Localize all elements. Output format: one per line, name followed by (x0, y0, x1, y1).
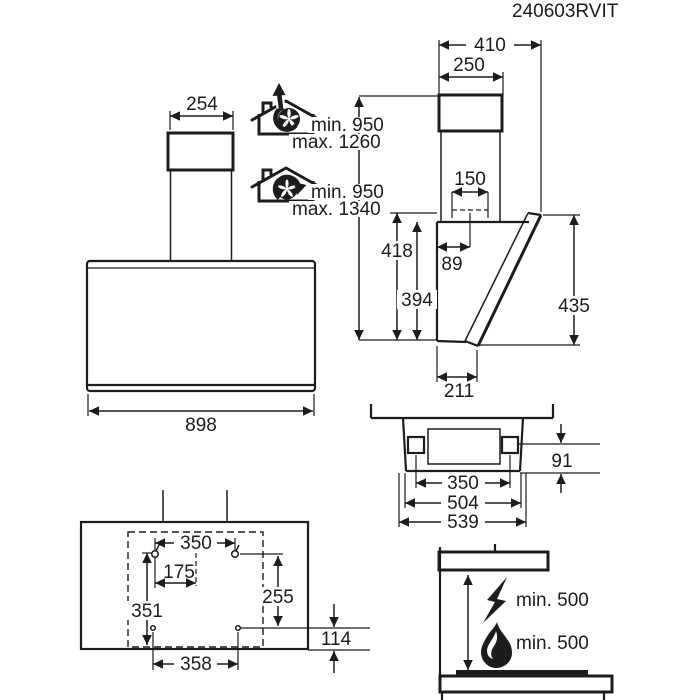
dim-114-label: 114 (321, 629, 352, 650)
dim-254-label: 254 (186, 94, 218, 115)
dim-89-label: 89 (441, 254, 462, 275)
recirc-max-label: max. 1340 (292, 199, 381, 220)
dim-435-label: 435 (558, 296, 590, 317)
clearance-gas-label: min. 500 (516, 633, 589, 654)
dim-211-label: 211 (444, 381, 474, 402)
side-body-bottom (437, 341, 466, 342)
dim-351-label: 351 (131, 601, 163, 622)
dim-358-label: 358 (180, 654, 212, 675)
dim-394-label: 394 (401, 290, 433, 311)
clearance-electric-label: min. 500 (516, 590, 589, 611)
dim-350-holes-label: 350 (180, 533, 212, 554)
dim-539-label: 539 (447, 512, 479, 533)
background (0, 0, 700, 700)
dim-418-label: 418 (381, 241, 413, 262)
dim-255-label: 255 (262, 587, 294, 608)
technical-drawing-svg: 240603RVIT 254 898 (0, 0, 700, 700)
dim-350-brackets-label: 350 (447, 473, 479, 494)
dim-91-label: 91 (551, 451, 572, 472)
installation-drawing-page: 240603RVIT 254 898 (0, 0, 700, 700)
dim-898-label: 898 (185, 415, 217, 436)
dim-504-label: 504 (447, 493, 479, 514)
document-code: 240603RVIT (512, 1, 619, 22)
dim-410-label: 410 (474, 35, 506, 56)
dim-150-label: 150 (454, 169, 486, 190)
dim-250-label: 250 (453, 55, 485, 76)
exhaust-max-label: max. 1260 (292, 132, 381, 153)
dim-175-label: 175 (163, 562, 195, 583)
